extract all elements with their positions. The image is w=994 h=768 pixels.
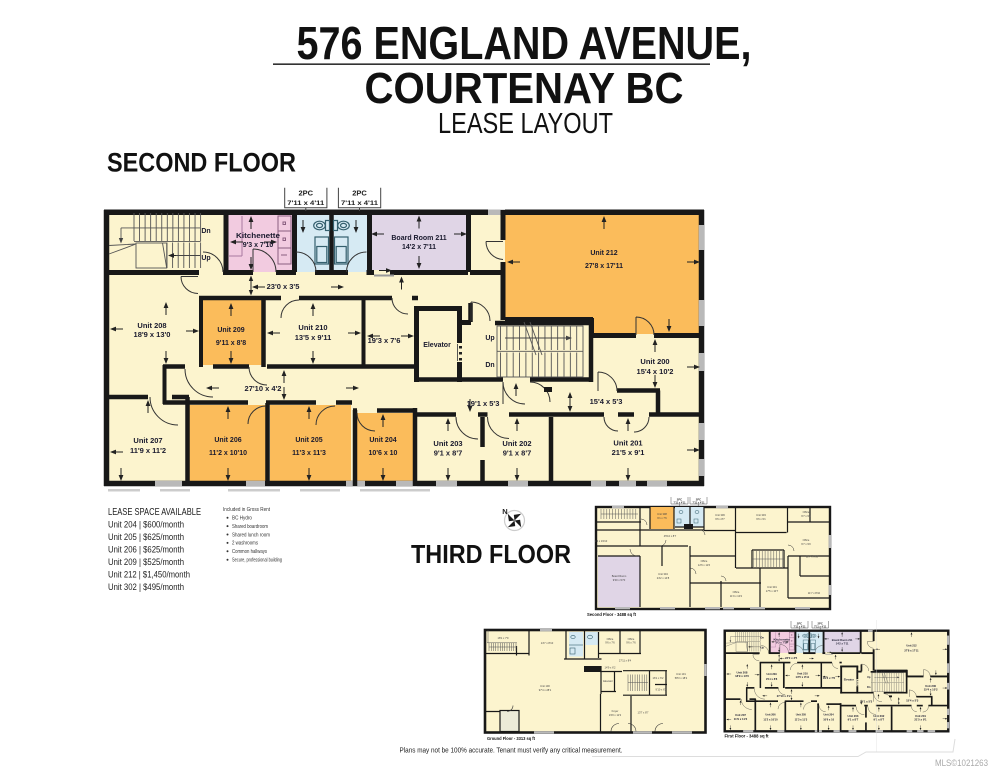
svg-text:576 ENGLAND AVENUE,: 576 ENGLAND AVENUE,	[297, 17, 752, 69]
svg-text:27'10 x 4'2: 27'10 x 4'2	[245, 384, 282, 393]
svg-text:Office: Office	[607, 637, 614, 641]
svg-text:97'4 x 28'1: 97'4 x 28'1	[539, 688, 552, 692]
svg-text:7'11 x 4'11: 7'11 x 4'11	[793, 626, 806, 629]
svg-text:Unit 308: Unit 308	[657, 512, 667, 516]
svg-text:18'1 x 7'9: 18'1 x 7'9	[498, 636, 509, 640]
svg-text:58'3 x 18'2: 58'3 x 18'2	[675, 676, 688, 680]
svg-text:Unit 208: Unit 208	[137, 321, 166, 330]
svg-text:Unit 202: Unit 202	[502, 439, 531, 448]
svg-text:9'11 x 8'8: 9'11 x 8'8	[216, 340, 246, 347]
svg-text:9'6 x 7'6: 9'6 x 7'6	[626, 641, 636, 645]
svg-text:18'9 x 13'0: 18'9 x 13'0	[134, 330, 171, 339]
svg-text:2 washrooms: 2 washrooms	[232, 541, 258, 547]
svg-text:21'5 x 9'1: 21'5 x 9'1	[612, 448, 645, 457]
svg-text:7'11 x 4'11: 7'11 x 4'11	[814, 626, 827, 629]
svg-text:SECOND FLOOR: SECOND FLOOR	[107, 148, 296, 178]
svg-text:Unit 101: Unit 101	[676, 672, 686, 676]
svg-text:2PC: 2PC	[352, 189, 367, 198]
svg-text:23'0 x 3'5: 23'0 x 3'5	[267, 282, 300, 291]
svg-text:10'6 x 10: 10'6 x 10	[369, 450, 398, 457]
svg-text:24'2 x 14'8: 24'2 x 14'8	[657, 576, 670, 580]
svg-text:Up: Up	[201, 255, 210, 262]
svg-text:Unit 200: Unit 200	[640, 357, 669, 366]
svg-text:9'10 x 6'2: 9'10 x 6'2	[656, 688, 667, 692]
svg-text:15'4 x 10'2: 15'4 x 10'2	[637, 367, 674, 376]
svg-text:11'7 x 9'10: 11'7 x 9'10	[806, 555, 819, 559]
svg-text:11'9 x 10'2: 11'9 x 10'2	[730, 594, 743, 598]
svg-text:9'1 x 8'7: 9'1 x 8'7	[503, 449, 532, 458]
svg-text:COURTENAY BC: COURTENAY BC	[365, 64, 684, 113]
svg-text:Up: Up	[485, 335, 494, 342]
svg-text:27'8 x 17'11: 27'8 x 17'11	[585, 263, 623, 270]
svg-text:Unit 209: Unit 209	[217, 327, 244, 334]
svg-text:23'0 x 11'3: 23'0 x 11'3	[609, 713, 622, 717]
svg-text:Unit 306: Unit 306	[715, 513, 725, 517]
svg-text:Plans may not be 100% accurate: Plans may not be 100% accurate. Tenant m…	[400, 748, 623, 755]
svg-text:MLS©1021263: MLS©1021263	[935, 758, 988, 768]
svg-text:Unit 206 | $625/month: Unit 206 | $625/month	[108, 545, 184, 556]
svg-text:Elevator: Elevator	[603, 679, 613, 683]
svg-text:45'10 x 8'7: 45'10 x 8'7	[664, 534, 677, 538]
svg-text:Dn: Dn	[201, 228, 210, 235]
svg-text:Kitchenette: Kitchenette	[236, 233, 280, 240]
svg-text:9'4 x 19'10: 9'4 x 19'10	[595, 539, 608, 543]
svg-text:9'7 x 9'0: 9'7 x 9'0	[801, 514, 811, 518]
svg-text:14'9 x 6'2: 14'9 x 6'2	[605, 666, 616, 670]
svg-text:9'3 x 7'10: 9'3 x 7'10	[243, 242, 274, 249]
svg-text:Office: Office	[803, 538, 810, 542]
svg-text:Shared boardroom: Shared boardroom	[232, 524, 268, 530]
svg-text:Elevator: Elevator	[423, 342, 451, 349]
svg-text:Unit 205: Unit 205	[295, 437, 322, 444]
svg-text:Unit 212 | $1,450/month: Unit 212 | $1,450/month	[108, 570, 190, 581]
svg-text:Second Floor - 3488 sq ft: Second Floor - 3488 sq ft	[587, 612, 636, 618]
svg-text:11'3 x 11'3: 11'3 x 11'3	[292, 450, 326, 457]
svg-text:LEASE LAYOUT: LEASE LAYOUT	[438, 108, 613, 140]
svg-text:9'6 x 8'7: 9'6 x 8'7	[715, 517, 725, 521]
svg-text:12'6 x 11'6: 12'6 x 11'6	[698, 563, 711, 567]
svg-text:Unit 204 | $600/month: Unit 204 | $600/month	[108, 520, 184, 531]
svg-text:Common hallways: Common hallways	[232, 549, 267, 555]
svg-text:15'4 x 5'3: 15'4 x 5'3	[590, 397, 623, 406]
svg-text:11'2 x 10'10: 11'2 x 10'10	[209, 450, 247, 457]
svg-text:14'7 x 8'10: 14'7 x 8'10	[541, 641, 554, 645]
svg-text:Unit 210: Unit 210	[298, 323, 327, 332]
svg-text:Secure, professional building: Secure, professional building	[232, 558, 282, 564]
svg-text:Office: Office	[733, 590, 740, 594]
svg-text:19'1 x 5'3: 19'1 x 5'3	[467, 399, 500, 408]
svg-text:13'7 x 8'7: 13'7 x 8'7	[638, 711, 649, 715]
svg-text:Office: Office	[803, 510, 810, 514]
svg-text:Unit 100: Unit 100	[540, 684, 550, 688]
svg-text:9'6 x 9'1: 9'6 x 9'1	[756, 517, 766, 521]
svg-text:Unit 207: Unit 207	[133, 436, 162, 445]
svg-text:16'1 x 6'2: 16'1 x 6'2	[653, 676, 664, 680]
svg-text:Foyer: Foyer	[612, 709, 619, 713]
svg-text:Office: Office	[628, 637, 635, 641]
svg-text:7'11 x 4'11: 7'11 x 4'11	[287, 200, 324, 207]
svg-text:Board Room 211: Board Room 211	[391, 235, 446, 242]
svg-text:N: N	[502, 507, 507, 516]
svg-text:Office: Office	[701, 559, 708, 563]
svg-text:7'11 x 4'11: 7'11 x 4'11	[673, 502, 686, 505]
svg-text:Unit 212: Unit 212	[590, 250, 617, 257]
svg-text:Shared lunch room: Shared lunch room	[232, 532, 270, 538]
svg-text:27'11 x 8'4: 27'11 x 8'4	[619, 659, 632, 663]
svg-text:17'5 x 10'7: 17'5 x 10'7	[766, 589, 779, 593]
svg-text:Dn: Dn	[485, 362, 494, 369]
svg-text:LEASE SPACE AVAILABLE: LEASE SPACE AVAILABLE	[108, 507, 201, 518]
svg-text:Unit 304: Unit 304	[658, 572, 668, 576]
svg-text:THIRD FLOOR: THIRD FLOOR	[411, 539, 571, 569]
svg-text:Unit 303: Unit 303	[756, 513, 766, 517]
svg-text:Unit 302 | $495/month: Unit 302 | $495/month	[108, 582, 184, 593]
svg-text:9'6 x 7'6: 9'6 x 7'6	[605, 641, 615, 645]
svg-text:Unit 201: Unit 201	[613, 439, 642, 448]
svg-text:7'11 x 4'11: 7'11 x 4'11	[341, 200, 378, 207]
svg-text:2PC: 2PC	[299, 189, 314, 198]
svg-text:Board Room: Board Room	[612, 574, 627, 578]
svg-text:First Floor - 3488 sq ft: First Floor - 3488 sq ft	[725, 734, 769, 740]
svg-text:Ground Floor - 3313 sq ft: Ground Floor - 3313 sq ft	[487, 736, 535, 742]
svg-text:Unit 205 | $625/month: Unit 205 | $625/month	[108, 532, 184, 543]
svg-text:7'11 x 4'11: 7'11 x 4'11	[692, 502, 705, 505]
svg-text:9'7 x 9'0: 9'7 x 9'0	[801, 542, 811, 546]
svg-text:11'7 x 8'10: 11'7 x 8'10	[808, 591, 821, 595]
svg-text:Unit 204: Unit 204	[369, 437, 396, 444]
svg-text:9'00 x 9'70: 9'00 x 9'70	[613, 578, 626, 582]
svg-text:Unit 206: Unit 206	[214, 437, 241, 444]
svg-text:BC Hydro: BC Hydro	[232, 516, 252, 522]
svg-text:Unit 209 | $525/month: Unit 209 | $525/month	[108, 557, 184, 568]
svg-text:19'3 x 7'6: 19'3 x 7'6	[368, 336, 401, 345]
svg-text:9'1 x 8'7: 9'1 x 8'7	[434, 449, 463, 458]
svg-text:Unit 301: Unit 301	[767, 585, 777, 589]
svg-text:Unit 203: Unit 203	[433, 439, 462, 448]
svg-text:13'5 x 9'11: 13'5 x 9'11	[295, 333, 332, 342]
svg-text:14'2 x 7'11: 14'2 x 7'11	[402, 244, 436, 251]
svg-text:11'9 x 11'2: 11'9 x 11'2	[130, 446, 166, 455]
svg-text:9'1 x 7'6: 9'1 x 7'6	[657, 516, 667, 520]
svg-text:Included in Gross Rent: Included in Gross Rent	[223, 507, 270, 513]
